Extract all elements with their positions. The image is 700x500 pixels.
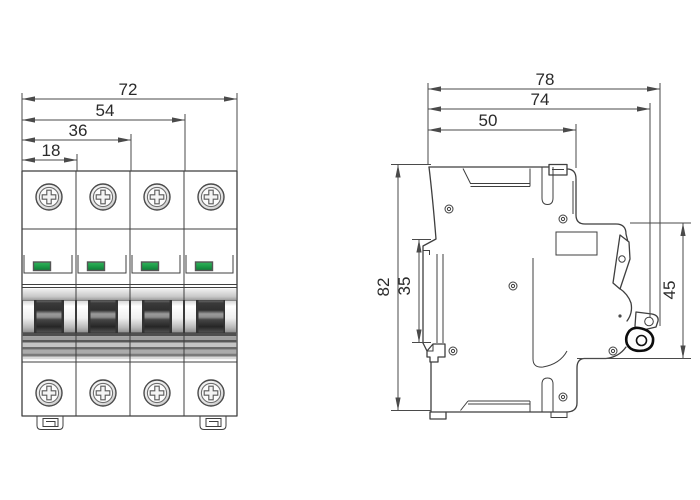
- arrowhead: [428, 86, 441, 91]
- toggle-side-strip: [64, 301, 75, 333]
- arrowhead: [680, 223, 685, 236]
- side-bottom-tab: [551, 412, 567, 418]
- toggle-side-strip: [172, 301, 183, 333]
- side-lower-front-edge: [430, 347, 626, 412]
- screw-icon: [36, 380, 62, 406]
- arrowhead: [428, 127, 441, 132]
- toggle-side-strip: [131, 301, 142, 333]
- rivet-icon: [559, 215, 567, 223]
- mcb-dimension-drawing: 72 54 36 18: [0, 0, 700, 500]
- toggle-lever: [613, 235, 658, 351]
- side-bottom-bevel: [461, 401, 531, 412]
- din-clip-inner: [43, 419, 58, 427]
- arrowhead: [680, 346, 685, 359]
- arrowhead: [647, 86, 660, 91]
- drawing-page: 72 54 36 18: [0, 0, 700, 500]
- din-hook-step: [423, 251, 430, 256]
- arrowhead: [224, 96, 237, 101]
- din-clip-notch: [209, 422, 218, 427]
- dimension-label-72: 72: [119, 80, 138, 99]
- toggle-handle: [199, 301, 224, 333]
- rivet-icon: [609, 347, 617, 355]
- arrowhead: [172, 117, 185, 122]
- dimension-label-45: 45: [660, 281, 679, 300]
- dimension-label-78: 78: [536, 70, 555, 89]
- dimension-label-50: 50: [479, 111, 498, 130]
- din-rail-clips: [37, 416, 226, 430]
- led-indicator: [34, 262, 51, 271]
- dimension-label-35: 35: [395, 277, 414, 296]
- dimension-label-82: 82: [374, 278, 393, 297]
- screw-icon: [144, 184, 170, 210]
- toggle-side-strip: [225, 301, 236, 333]
- terminal-block: [556, 232, 597, 255]
- rivet-icon: [509, 282, 517, 290]
- inner-panel-line: [533, 258, 567, 367]
- arrowhead: [395, 398, 400, 411]
- dimension-label-54: 54: [96, 101, 115, 120]
- rivet-icon: [559, 393, 567, 401]
- screw-icon: [90, 380, 116, 406]
- side-bottom-slot: [542, 378, 553, 412]
- side-view: [423, 165, 658, 420]
- din-clip-inner: [206, 419, 221, 427]
- rivet-icon: [445, 205, 453, 213]
- arrowhead: [22, 137, 35, 142]
- led-indicator: [88, 262, 105, 271]
- front-view-dimensions: 72 54 36 18: [22, 80, 237, 171]
- arrowhead: [416, 330, 421, 343]
- arrowhead: [428, 106, 441, 111]
- toggle-handle: [91, 301, 116, 333]
- arrowhead: [637, 106, 650, 111]
- din-clip-notch: [46, 422, 55, 427]
- side-bottom-foot: [430, 412, 446, 419]
- rivets: [445, 205, 617, 401]
- arrowhead: [22, 157, 35, 162]
- screw-icon: [144, 380, 170, 406]
- din-latch: [423, 343, 445, 362]
- side-top-bevel: [463, 169, 530, 187]
- arrowhead: [118, 137, 131, 142]
- dimension-label-36: 36: [69, 121, 88, 140]
- toggle-side-strip: [77, 301, 88, 333]
- screw-icon: [198, 380, 224, 406]
- arrowhead: [563, 127, 576, 132]
- rivet-icon: [449, 347, 457, 355]
- screw-icon: [90, 184, 116, 210]
- arrowhead: [22, 96, 35, 101]
- led-indicator: [196, 262, 213, 271]
- pivot-dot: [618, 314, 621, 317]
- side-view-dimensions: 78 74 50 82 35 45: [374, 70, 691, 411]
- toggle-side-strip: [23, 301, 34, 333]
- dimension-label-18: 18: [42, 141, 61, 160]
- screw-icon: [198, 184, 224, 210]
- arrowhead: [395, 165, 400, 178]
- toggle-handle: [37, 301, 62, 333]
- toggle-handle: [145, 301, 170, 333]
- toggle-side-strip: [185, 301, 196, 333]
- dimension-label-74: 74: [531, 90, 550, 109]
- arrowhead: [64, 157, 77, 162]
- front-view: [22, 171, 237, 430]
- toggle-side-strip: [118, 301, 129, 333]
- led-indicator: [142, 262, 159, 271]
- arrowhead: [22, 117, 35, 122]
- arrowhead: [416, 240, 421, 253]
- screw-icon: [36, 184, 62, 210]
- toggle-knob-hole: [637, 336, 647, 346]
